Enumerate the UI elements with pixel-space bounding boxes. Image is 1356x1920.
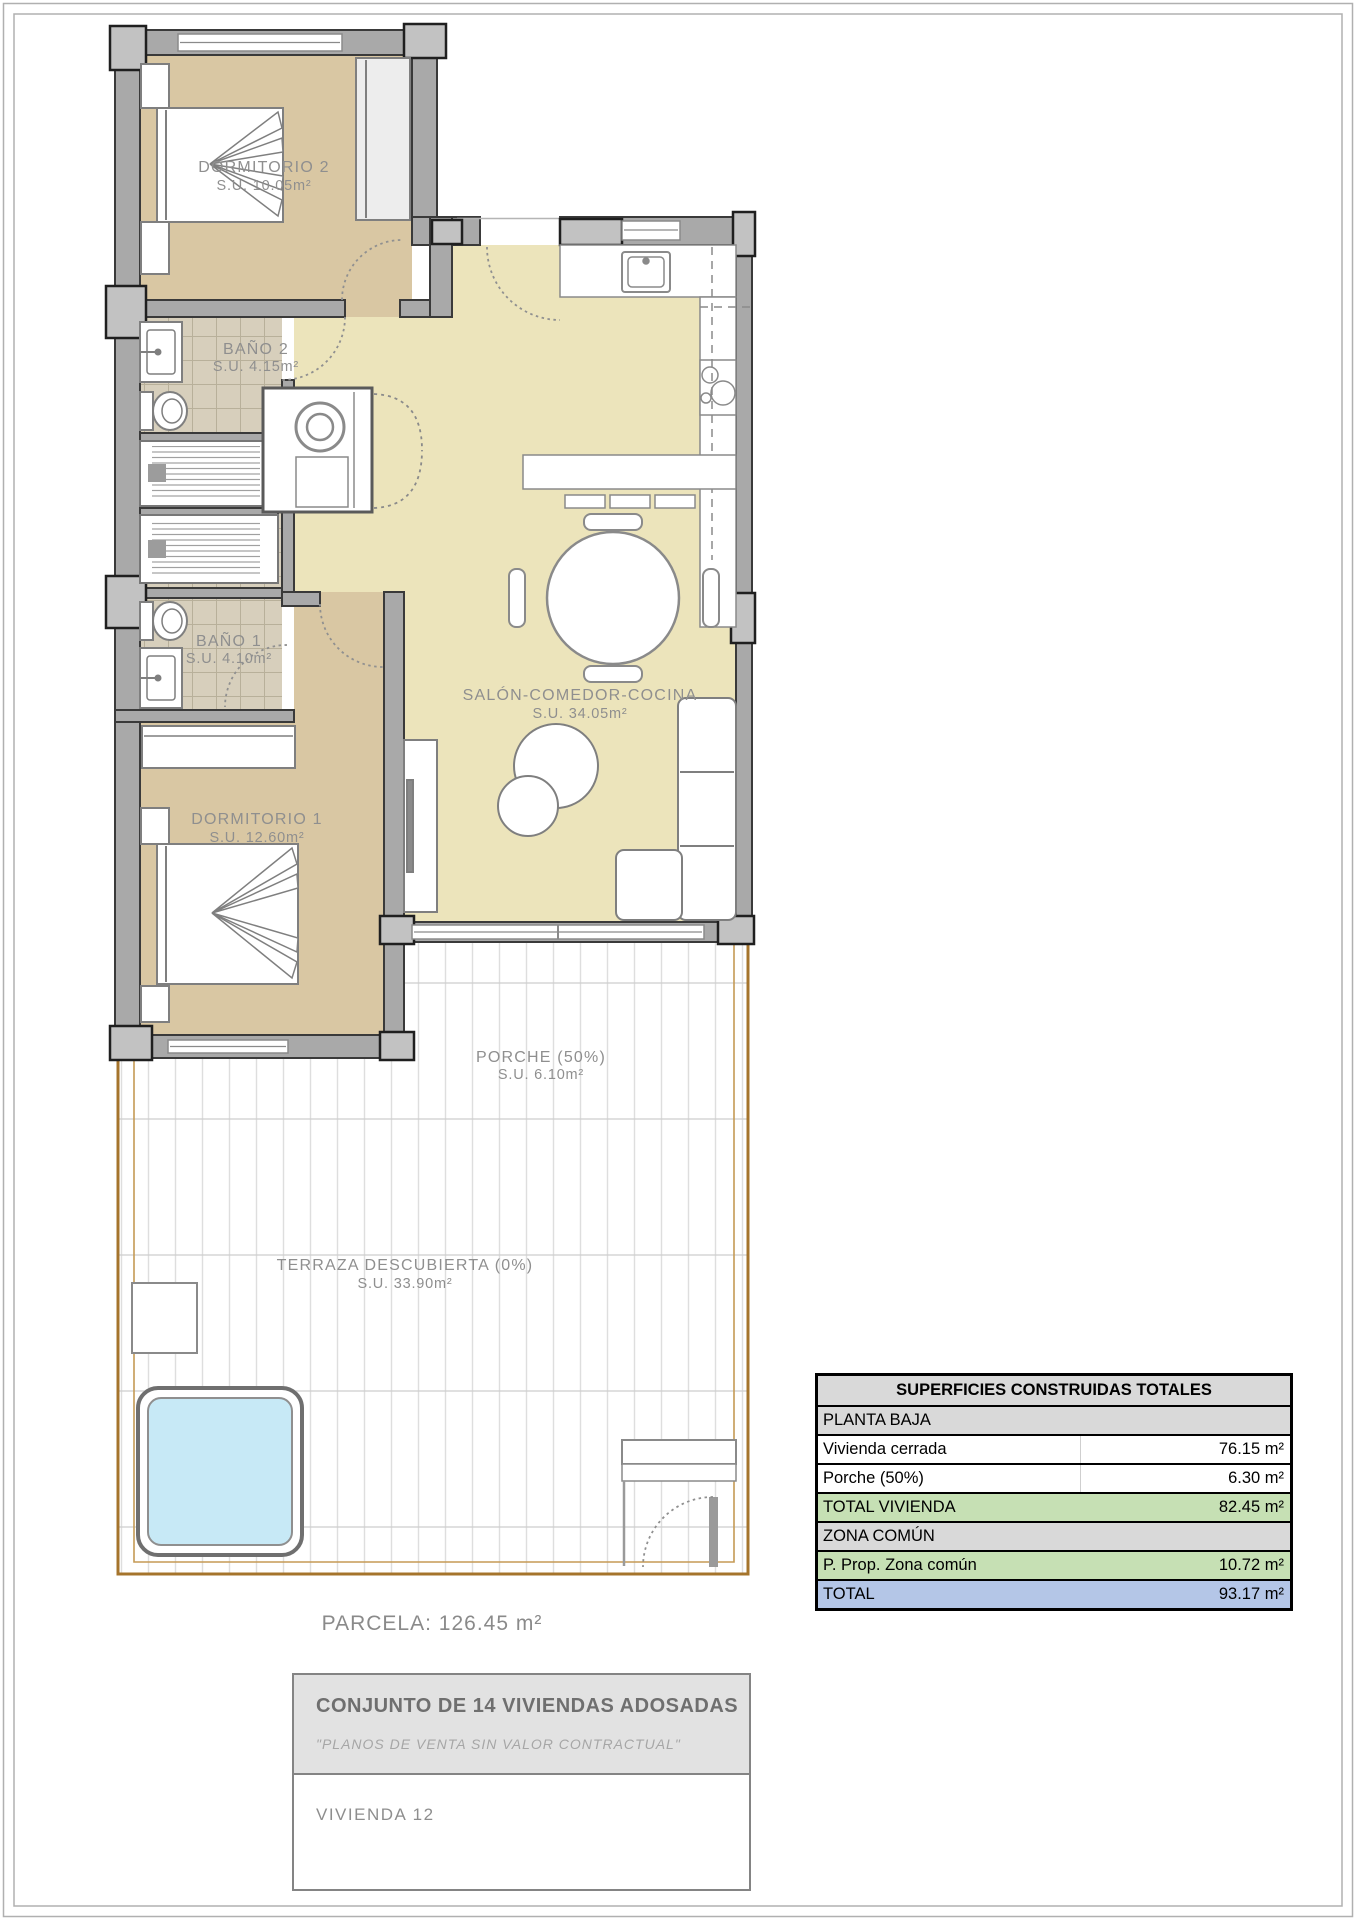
wardrobe [356,58,410,220]
toilet-tank [140,392,153,430]
burner [711,381,735,405]
plan-sheet: DORMITORIO 2 S.U. 10.05m² BAÑO 2 S.U. 4.… [0,0,1356,1920]
window-kitchen [622,221,680,240]
row-value: 6.30 m² [1228,1469,1290,1488]
title-block-body: VIVIENDA 12 [294,1775,749,1825]
title-block: CONJUNTO DE 14 VIVIENDAS ADOSADAS "PLANO… [292,1673,751,1891]
label-bano1-area: S.U. 4.10m² [186,651,272,667]
chair [703,569,719,627]
stool [655,495,695,508]
table-row: PLANTA BAJA [818,1405,1290,1434]
row-label: TOTAL [818,1585,875,1604]
floor-plan-drawing: DORMITORIO 2 S.U. 10.05m² BAÑO 2 S.U. 4.… [0,0,1356,1920]
window-dormitorio1 [168,1040,288,1053]
surfaces-table: SUPERFICIES CONSTRUIDAS TOTALES PLANTA B… [815,1373,1293,1611]
dining-table [547,532,679,664]
tv [407,780,413,872]
row-label: ZONA COMÚN [818,1527,935,1546]
row-value: 76.15 m² [1219,1440,1290,1459]
nightstand [141,222,169,274]
coffee-table [498,776,558,836]
chair [509,569,525,627]
chair [584,666,642,682]
label-dormitorio2-area: S.U. 10.05m² [216,178,311,194]
label-bano2-area: S.U. 4.15m² [213,359,299,375]
label-bano2: BAÑO 2 [223,338,289,358]
threshold-dormitorio1 [320,592,384,606]
nightstand [141,64,169,108]
fixtures-bano2 [140,322,187,430]
table-title: SUPERFICIES CONSTRUIDAS TOTALES [896,1381,1212,1400]
burner [701,393,711,403]
sofa-chaise [616,850,682,920]
label-terraza: TERRAZA DESCUBIERTA (0%) [277,1257,534,1274]
nightstand [141,808,169,844]
row-value: 93.17 m² [1219,1585,1290,1604]
table-row: TOTAL VIVIENDA 82.45 m² [818,1492,1290,1521]
terrace-utility-box [132,1283,197,1353]
label-bano1: BAÑO 1 [196,630,262,650]
fixtures-bano1 [140,602,187,708]
pool [138,1388,302,1555]
stool [610,495,650,508]
row-value: 82.45 m² [1219,1498,1290,1517]
stool [565,495,605,508]
label-terraza-area: S.U. 33.90m² [357,1276,452,1292]
chair [584,514,642,530]
table-header: SUPERFICIES CONSTRUIDAS TOTALES [818,1376,1290,1405]
row-label: Porche (50%) [818,1465,1081,1492]
burner [702,367,718,383]
window-dormitorio2 [178,34,342,51]
table-row: P. Prop. Zona común 10.72 m² [818,1550,1290,1579]
window-living-sliding-door [412,925,704,939]
kitchen-peninsula [523,455,736,489]
label-dormitorio1: DORMITORIO 1 [191,811,322,828]
label-porche-area: S.U. 6.10m² [498,1067,584,1083]
table-row: Vivienda cerrada 76.15 m² [818,1434,1290,1463]
title-block-header: CONJUNTO DE 14 VIVIENDAS ADOSADAS "PLANO… [294,1675,749,1775]
unit-label: VIVIENDA 12 [316,1805,749,1825]
table-row: ZONA COMÚN [818,1521,1290,1550]
label-salon-area: S.U. 34.05m² [532,706,627,722]
disclaimer-text: "PLANOS DE VENTA SIN VALOR CONTRACTUAL" [316,1736,749,1752]
threshold-dormitorio2 [345,300,400,317]
row-label: P. Prop. Zona común [818,1556,977,1575]
wardrobe [142,726,295,768]
label-parcela: PARCELA: 126.45 m² [322,1612,543,1635]
gate-door-leaf [709,1497,718,1567]
label-porche: PORCHE (50%) [476,1049,606,1066]
nightstand [141,986,169,1022]
project-title: CONJUNTO DE 14 VIVIENDAS ADOSADAS [316,1695,749,1718]
toilet-tank [140,602,153,640]
row-label: TOTAL VIVIENDA [818,1498,956,1517]
table-row: Porche (50%) 6.30 m² [818,1463,1290,1492]
sofa [678,698,736,920]
washing-machine [296,403,344,451]
label-salon: SALÓN-COMEDOR-COCINA [463,685,698,704]
row-label: PLANTA BAJA [818,1411,931,1430]
row-value: 10.72 m² [1219,1556,1290,1575]
label-dormitorio2: DORMITORIO 2 [198,159,329,176]
row-label: Vivienda cerrada [818,1436,1081,1463]
table-row: TOTAL 93.17 m² [818,1579,1290,1608]
label-dormitorio1-area: S.U. 12.60m² [209,830,304,846]
